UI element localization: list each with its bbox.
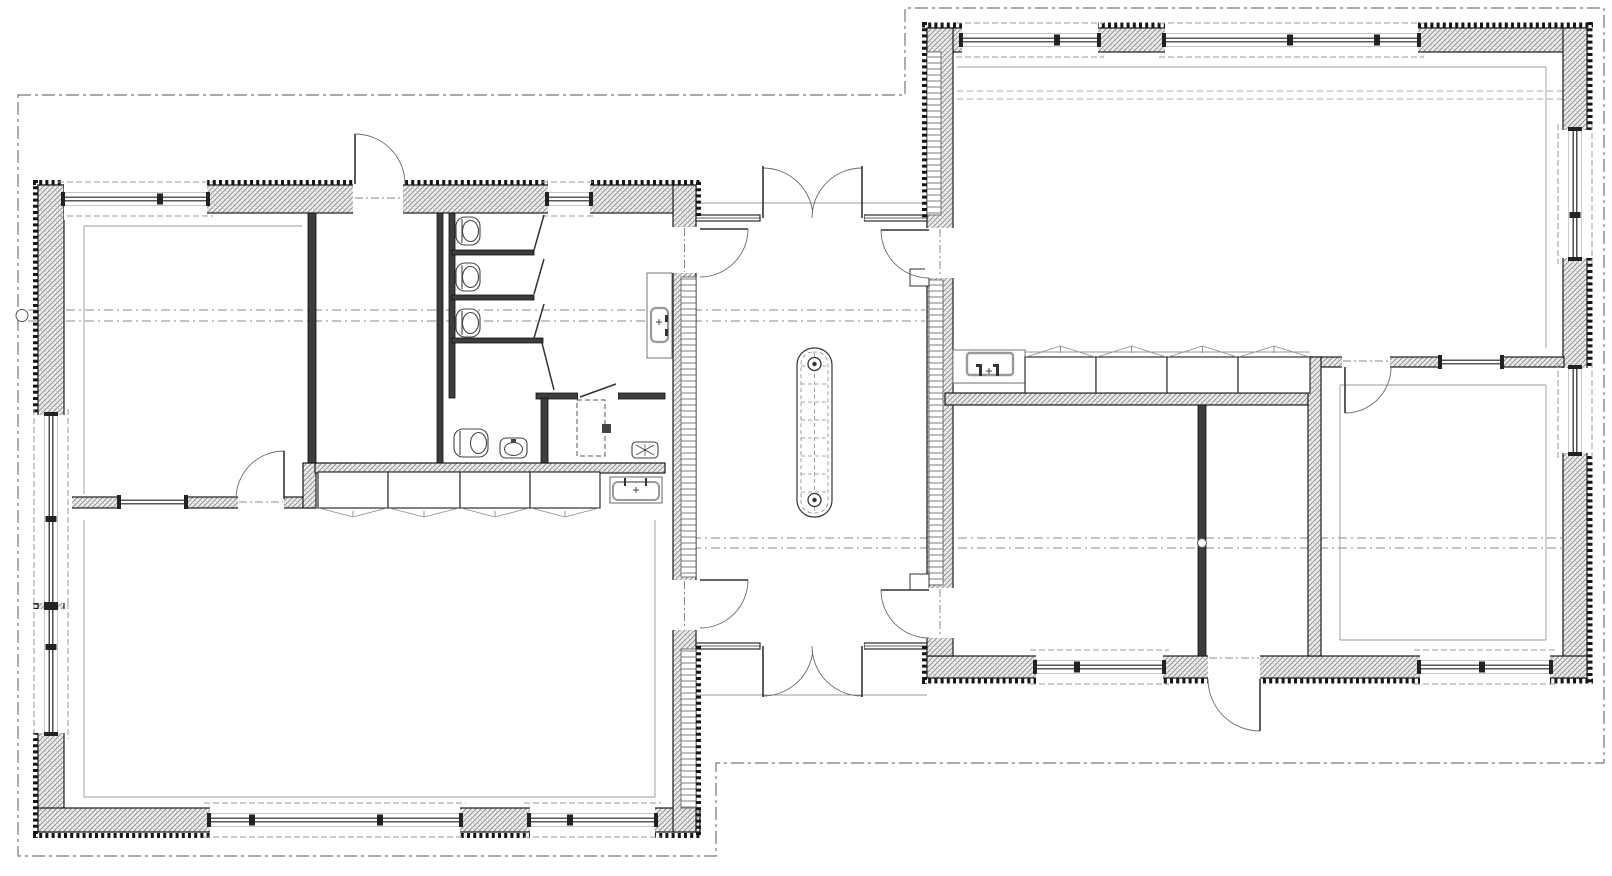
window (204, 799, 466, 841)
window (1159, 19, 1424, 61)
bidet (500, 438, 527, 458)
toilet (456, 309, 480, 337)
window (30, 409, 72, 609)
window (524, 799, 661, 841)
toilet (456, 217, 480, 245)
window (1554, 124, 1596, 264)
toilet (456, 263, 480, 291)
window (1414, 646, 1556, 688)
wall-cladding-strip (681, 277, 696, 577)
shower-tray (632, 442, 658, 458)
window (1438, 353, 1504, 371)
paper-background (0, 0, 1612, 876)
window (542, 178, 596, 220)
wall-cladding-strip (681, 649, 696, 808)
window (58, 178, 213, 220)
toilet (454, 429, 488, 457)
window (117, 493, 188, 511)
wall-cladding-strip (927, 52, 941, 215)
window (1554, 362, 1596, 459)
window (30, 603, 72, 739)
floor-plan-drawing (0, 0, 1612, 876)
wall-cladding-strip (929, 280, 943, 585)
window (956, 19, 1104, 61)
door-jamb-step (910, 574, 929, 590)
kitchen-sink (953, 350, 1025, 383)
window (1030, 646, 1169, 688)
double-washbasin (610, 477, 662, 503)
corridor-washbasin (647, 273, 672, 358)
floor-plan-canvas (0, 0, 1612, 876)
